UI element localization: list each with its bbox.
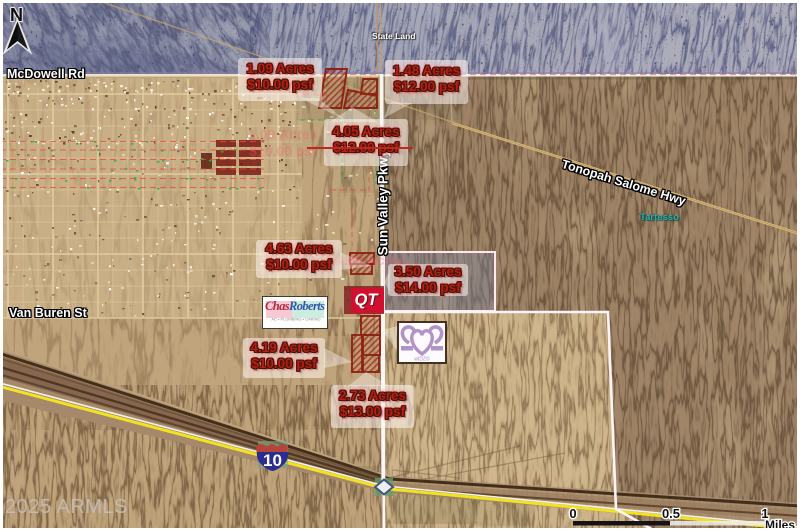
svg-text:wIDZ©: wIDZ© — [414, 356, 430, 363]
svg-text:0: 0 — [569, 506, 576, 521]
svg-text:10: 10 — [263, 451, 282, 470]
svg-text:Miles: Miles — [765, 518, 795, 531]
svg-text:0.5: 0.5 — [662, 506, 680, 521]
